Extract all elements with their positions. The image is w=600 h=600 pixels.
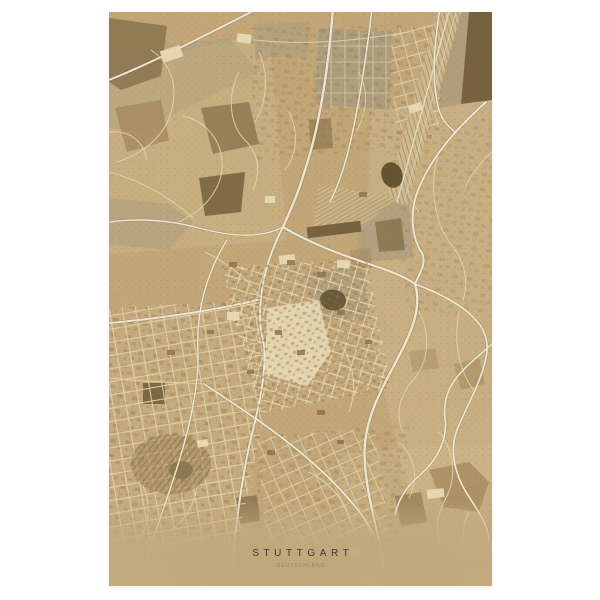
paper-grain-texture	[109, 12, 492, 586]
map-poster: STUTTGART DEUTSCHLAND	[109, 12, 492, 586]
page-background: { "poster": { "title": "STUTTGART", "sub…	[0, 0, 600, 600]
product-image-canvas: STUTTGART DEUTSCHLAND	[0, 0, 600, 600]
stuttgart-map-graphic	[109, 12, 492, 586]
